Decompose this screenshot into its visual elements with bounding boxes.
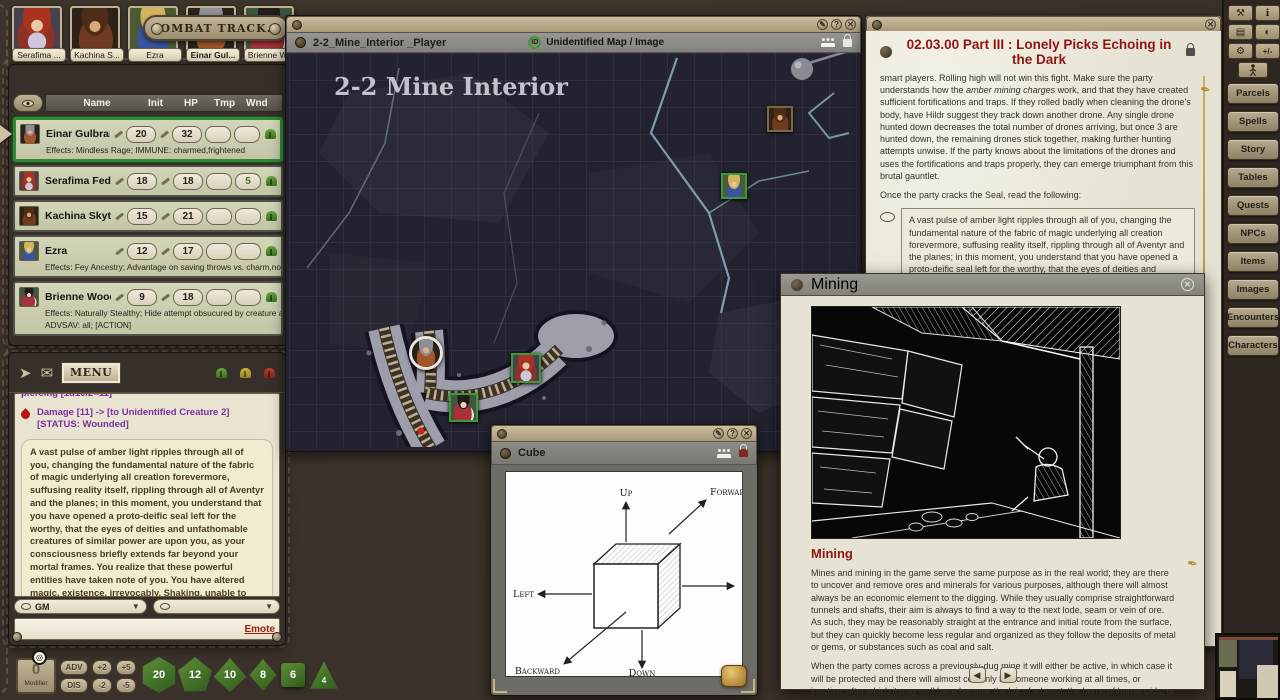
info-icon[interactable]: ℹ <box>1255 5 1280 21</box>
cube-diagram: Up Forward Right Left Backward Down <box>505 471 743 677</box>
combatant-name[interactable]: Serafima Fedorov <box>45 175 111 187</box>
token-thumb[interactable] <box>19 206 39 226</box>
helmet-icon-red[interactable] <box>264 368 275 378</box>
lock-icon[interactable] <box>843 39 852 47</box>
hp-field[interactable]: 18 <box>173 173 203 190</box>
modifier-label: Modifier <box>18 680 54 687</box>
help-icon[interactable]: ? <box>727 428 738 439</box>
tmp-field[interactable] <box>206 208 232 225</box>
helmet-icon[interactable] <box>266 292 277 302</box>
cube-window-chrome: ✎ ? ✕ <box>491 425 757 441</box>
mining-heading: Mining <box>811 546 1176 561</box>
mining-titlebar[interactable]: Mining ✕ <box>781 274 1204 296</box>
whisper-envelope-icon[interactable]: ✉ <box>41 364 54 382</box>
edit-pencil-icon[interactable] <box>115 177 124 185</box>
edit-pencil-icon[interactable] <box>161 247 170 255</box>
chat-line-partial: piercing [1d10/2=11] <box>21 393 273 399</box>
cube-title: Cube <box>518 447 546 459</box>
eye-icon <box>22 100 34 107</box>
sidebar: ⚒ ℹ ▤ ◐ ⚙ +/- Parcels Spells Story Table… <box>1222 0 1280 700</box>
helmet-icon[interactable] <box>266 246 277 256</box>
speaker-dropdown[interactable]: GM ▼ <box>14 599 147 614</box>
cube-titlebar[interactable]: Cube <box>491 441 757 465</box>
menu-button[interactable]: MENU <box>62 363 120 383</box>
tracker-row[interactable]: Serafima Fedorov 18 18 5 <box>13 165 283 197</box>
gear-icon[interactable]: ⚙ <box>1228 43 1253 59</box>
chat-toolbar: ➤ ✉ MENU <box>9 353 285 393</box>
token-thumb[interactable] <box>19 241 39 261</box>
corner-bracket <box>741 679 755 693</box>
d6-die[interactable]: 6 <box>281 663 305 687</box>
story-window-chrome: ✕ <box>866 16 1221 31</box>
helmet-icon-yellow[interactable] <box>240 368 251 378</box>
portrait-label: Serafima ... <box>12 48 66 62</box>
portrait-label: Kachina S... <box>70 48 124 62</box>
map-canvas[interactable]: 2-2 Mine Interior <box>289 53 858 447</box>
cube-window: ✎ ? ✕ Cube <box>490 424 758 696</box>
map-title: 2-2_Mine_Interior _Player <box>313 37 446 49</box>
sidebar-item-spells[interactable]: Spells <box>1227 111 1279 132</box>
token-thumb[interactable] <box>20 124 40 144</box>
players-visibility-icon[interactable] <box>717 449 731 458</box>
window-knob[interactable] <box>497 429 507 439</box>
pointer-icon[interactable]: ➤ <box>19 364 32 382</box>
map-token-kachina[interactable] <box>767 106 793 132</box>
map-token-brienne[interactable] <box>449 393 478 422</box>
mining-window: Mining ✕ <box>780 273 1205 690</box>
tmp-field[interactable] <box>206 173 232 190</box>
map-canvas-title: 2-2 Mine Interior <box>334 72 568 101</box>
sidebar-item-items[interactable]: Items <box>1227 251 1279 272</box>
tools-icon[interactable]: ⚒ <box>1228 5 1253 21</box>
plus5-button[interactable]: +5 <box>116 660 136 675</box>
tmp-field[interactable] <box>205 126 231 143</box>
init-field[interactable]: 20 <box>126 126 156 143</box>
id-badge: ID <box>528 36 541 49</box>
masks-icon[interactable]: ◐ <box>1255 24 1280 40</box>
screen-thumbnail[interactable] <box>1215 633 1280 700</box>
character-mode-icon[interactable] <box>1238 62 1268 78</box>
window-knob[interactable] <box>791 279 803 291</box>
init-field[interactable]: 15 <box>127 208 157 225</box>
token-thumb[interactable] <box>19 171 39 191</box>
corner-bracket <box>493 679 507 693</box>
close-icon[interactable]: ✕ <box>1181 278 1194 291</box>
wnd-field[interactable] <box>234 126 260 143</box>
edit-pencil-icon[interactable] <box>114 130 123 138</box>
tracker-row[interactable]: Einar Gulbrand 20 32 Effects: Mindless R… <box>13 117 283 162</box>
effects-line: Effects: Fey Ancestry; Advantage on savi… <box>19 262 277 273</box>
rivet-icon <box>151 23 163 35</box>
chevron-down-icon: ▼ <box>265 602 273 611</box>
mining-illustration <box>811 306 1121 539</box>
hp-field[interactable]: 32 <box>172 126 202 143</box>
prev-page-button[interactable]: ◀ <box>969 667 986 683</box>
speech-bubble-icon <box>21 603 31 610</box>
active-turn-pointer <box>0 125 12 143</box>
cube-label-backward: Backward <box>515 666 561 676</box>
map-token-einar[interactable] <box>409 336 443 370</box>
sidebar-item-npcs[interactable]: NPCs <box>1227 223 1279 244</box>
portrait-label: Ezra <box>128 48 182 62</box>
close-icon[interactable]: ✕ <box>1205 19 1216 30</box>
wnd-field[interactable] <box>235 208 261 225</box>
d10-die[interactable]: 10 <box>213 658 247 692</box>
init-field[interactable]: 18 <box>127 173 157 190</box>
effects-line-2: ADVSAV: all; [ACTION] <box>19 320 277 331</box>
visibility-toggle[interactable] <box>13 94 43 112</box>
minus5-button[interactable]: -5 <box>116 678 136 693</box>
emote-button[interactable]: Emote <box>244 624 275 635</box>
edit-pencil-icon[interactable] <box>161 212 170 220</box>
tracker-row[interactable]: Brienne Wood 9 18 Effects: Naturally Ste… <box>13 281 283 335</box>
edit-pencil-icon[interactable] <box>115 247 124 255</box>
dis-button[interactable]: DIS <box>60 678 88 693</box>
col-name: Name <box>46 98 148 109</box>
col-init: Init <box>148 98 184 109</box>
map-knob-icon[interactable] <box>295 37 306 48</box>
story-title: 02.03.00 Part III : Lonely Picks Echoing… <box>900 37 1178 67</box>
help-icon[interactable]: ? <box>831 19 842 30</box>
lock-icon[interactable] <box>739 449 748 457</box>
chat-log[interactable]: piercing [1d10/2=11] Damage [11] -> [to … <box>14 393 280 597</box>
screw-icon <box>272 632 282 642</box>
portrait-label: Einar Gul... <box>186 48 240 62</box>
minus2-button[interactable]: -2 <box>92 678 112 693</box>
map-id-group: ID Unidentified Map / Image <box>528 36 664 49</box>
edit-pencil-icon[interactable] <box>161 177 170 185</box>
mining-paragraph: Mines and mining in the game serve the s… <box>811 567 1176 653</box>
combatant-name[interactable]: Ezra <box>45 245 111 257</box>
map-window-chrome: ✎ ? ✕ <box>286 16 861 32</box>
cube-label-up: Up <box>620 488 633 499</box>
sidebar-item-story[interactable]: Story <box>1227 139 1279 160</box>
chat-window: ➤ ✉ MENU piercing [1d10/2=11] Damage [11… <box>8 352 286 646</box>
wnd-field[interactable] <box>235 289 261 306</box>
sidebar-item-characters[interactable]: Characters <box>1227 335 1279 356</box>
combatant-name[interactable]: Einar Gulbrand <box>46 128 110 140</box>
speech-bubble-icon <box>880 212 895 222</box>
hp-field[interactable]: 17 <box>173 243 203 260</box>
combat-tracker-tab[interactable]: COMBAT TRACK... <box>143 15 289 41</box>
hp-field[interactable]: 18 <box>173 289 203 306</box>
map-token-ezra[interactable] <box>721 173 747 199</box>
tracker-row[interactable]: Kachina Skytalon 15 21 <box>13 200 283 232</box>
wnd-field[interactable]: 5 <box>235 173 261 190</box>
modifiers-icon[interactable]: +/- <box>1255 43 1280 59</box>
combat-tracker-title: COMBAT TRACK... <box>151 22 281 35</box>
window-knob[interactable] <box>292 20 302 30</box>
effects-line: Effects: Mindless Rage; IMMUNE: charmed,… <box>20 145 276 156</box>
close-icon[interactable]: ✕ <box>845 19 856 30</box>
edit-pencil-icon[interactable] <box>115 212 124 220</box>
book-icon[interactable]: ▤ <box>1228 24 1253 40</box>
d4-die[interactable]: 4 <box>309 660 339 690</box>
tracker-column-headers: Name Init HP Tmp Wnd <box>45 94 283 112</box>
draw-icon[interactable]: ✎ <box>817 19 828 30</box>
modifier-reset-icon[interactable]: ◎ <box>32 650 47 665</box>
edit-pencil-icon[interactable] <box>161 294 170 302</box>
red-marker <box>418 428 425 435</box>
chevron-down-icon: ▼ <box>132 602 140 611</box>
sidebar-item-images[interactable]: Images <box>1227 279 1279 300</box>
d12-die[interactable]: 12 <box>177 657 213 693</box>
col-hp: HP <box>184 98 214 109</box>
d20-die[interactable]: 20 <box>141 657 177 693</box>
party-portrait[interactable]: Serafima ... <box>12 6 62 62</box>
story-knob-icon[interactable] <box>880 46 892 58</box>
map-titlebar[interactable]: 2-2_Mine_Interior _Player ID Unidentifie… <box>286 32 861 53</box>
helmet-icon[interactable] <box>266 211 277 221</box>
speaker-value: GM <box>35 602 50 612</box>
map-token-serafima[interactable] <box>511 353 541 383</box>
lock-icon[interactable] <box>1186 48 1195 56</box>
map-id-label: Unidentified Map / Image <box>546 37 664 48</box>
draw-icon[interactable]: ✎ <box>713 428 724 439</box>
helmet-icon-green[interactable] <box>216 368 227 378</box>
quill-icon[interactable]: ✒ <box>1186 555 1200 573</box>
portrait-image-kachina[interactable] <box>70 6 120 52</box>
tmp-field[interactable] <box>206 289 232 306</box>
edit-pencil-icon[interactable] <box>160 130 169 138</box>
combatant-name[interactable]: Kachina Skytalon <box>45 210 111 222</box>
col-wnd: Wnd <box>246 98 282 109</box>
cube-label-left: Left <box>513 589 534 600</box>
combatant-name[interactable]: Brienne Wood <box>45 291 111 303</box>
map-window: ✎ ? ✕ 2-2_Mine_Interior _Player ID Unide… <box>285 15 862 452</box>
col-tmp: Tmp <box>214 98 246 109</box>
sidebar-item-encounters[interactable]: Encounters <box>1227 307 1279 328</box>
portrait-image-serafima[interactable] <box>12 6 62 52</box>
cube-label-forward: Forward <box>710 487 742 498</box>
effects-line: Effects: Naturally Stealthy; Hide attemp… <box>19 308 277 319</box>
helmet-icon[interactable] <box>265 129 276 139</box>
close-icon[interactable]: ✕ <box>741 428 752 439</box>
language-dropdown[interactable]: ▼ <box>153 599 280 614</box>
wnd-field[interactable] <box>235 243 261 260</box>
chat-story-bubble: A vast pulse of amber light ripples thro… <box>21 439 273 597</box>
cube-knob-icon[interactable] <box>500 448 511 459</box>
init-field[interactable]: 9 <box>127 289 157 306</box>
sidebar-item-quests[interactable]: Quests <box>1227 195 1279 216</box>
desktop: Serafima ... Kachina S... Ezra Einar Gul… <box>0 0 1280 700</box>
combat-tracker-window: COMBAT TRACK... Name Init HP Tmp Wnd Ein… <box>8 64 288 346</box>
d8-die[interactable]: 8 <box>247 659 279 691</box>
left-edge-stitching <box>0 4 8 694</box>
plus2-button[interactable]: +2 <box>92 660 112 675</box>
next-page-button[interactable]: ▶ <box>1000 667 1017 683</box>
chat-input[interactable]: Emote <box>14 618 280 640</box>
tmp-field[interactable] <box>206 243 232 260</box>
screw-icon <box>12 632 22 642</box>
rivet-icon <box>269 23 281 35</box>
story-paragraph: smart players. Rolling high will not win… <box>880 72 1195 182</box>
adv-button[interactable]: ADV <box>60 660 88 675</box>
party-portrait[interactable]: Kachina S... <box>70 6 120 62</box>
story-paragraph: Once the party cracks the Seal, read the… <box>880 189 1195 201</box>
speech-bubble-icon <box>160 603 170 610</box>
cube-label-down: Down <box>629 668 656 676</box>
chat-damage-line: Damage [11] -> [to Unidentified Creature… <box>21 407 273 432</box>
hp-field[interactable]: 21 <box>173 208 203 225</box>
players-visibility-icon[interactable] <box>821 38 835 47</box>
helmet-icon[interactable] <box>266 176 277 186</box>
blood-drop-icon <box>19 408 32 421</box>
sidebar-item-parcels[interactable]: Parcels <box>1227 83 1279 104</box>
init-field[interactable]: 12 <box>127 243 157 260</box>
tracker-row[interactable]: Ezra 12 17 Effects: Fey Ancestry; Advant… <box>13 235 283 278</box>
sidebar-item-tables[interactable]: Tables <box>1227 167 1279 188</box>
mining-window-title: Mining <box>811 276 858 294</box>
window-knob[interactable] <box>872 20 882 30</box>
token-thumb[interactable] <box>19 287 39 307</box>
edit-pencil-icon[interactable] <box>115 294 124 302</box>
